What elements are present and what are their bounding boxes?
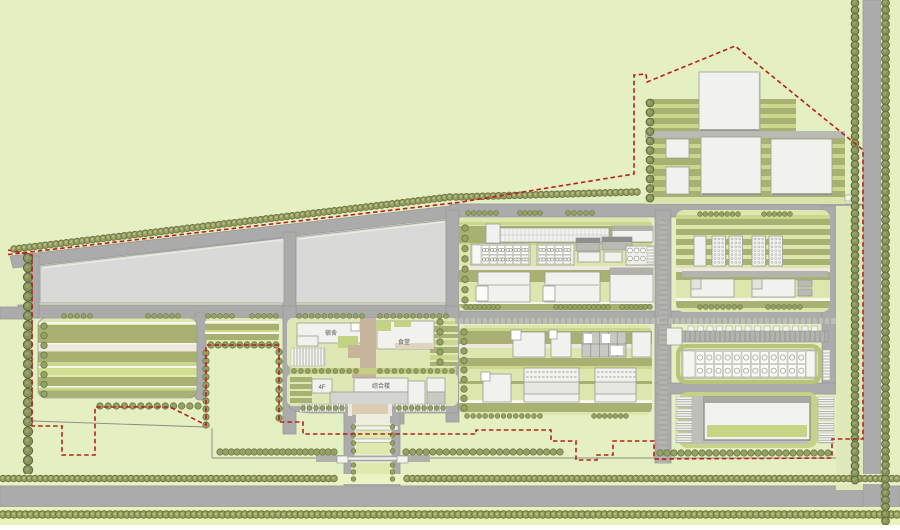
svg-text:4F: 4F xyxy=(318,385,325,391)
svg-text:综合楼: 综合楼 xyxy=(372,382,390,390)
svg-text:宿舍: 宿舍 xyxy=(325,329,337,337)
svg-text:食堂: 食堂 xyxy=(398,338,410,346)
